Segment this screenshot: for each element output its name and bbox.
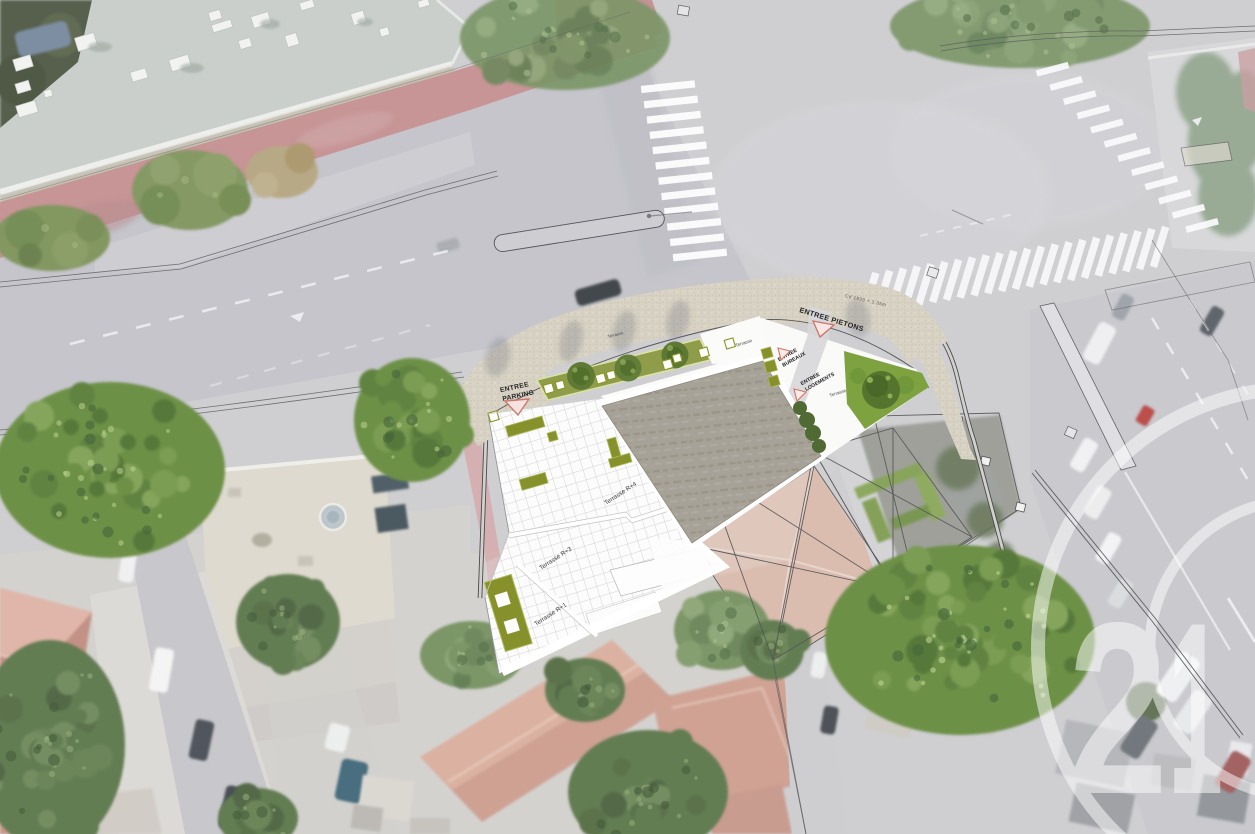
- svg-text:2: 2: [1068, 571, 1168, 834]
- svg-text:1: 1: [1168, 571, 1223, 834]
